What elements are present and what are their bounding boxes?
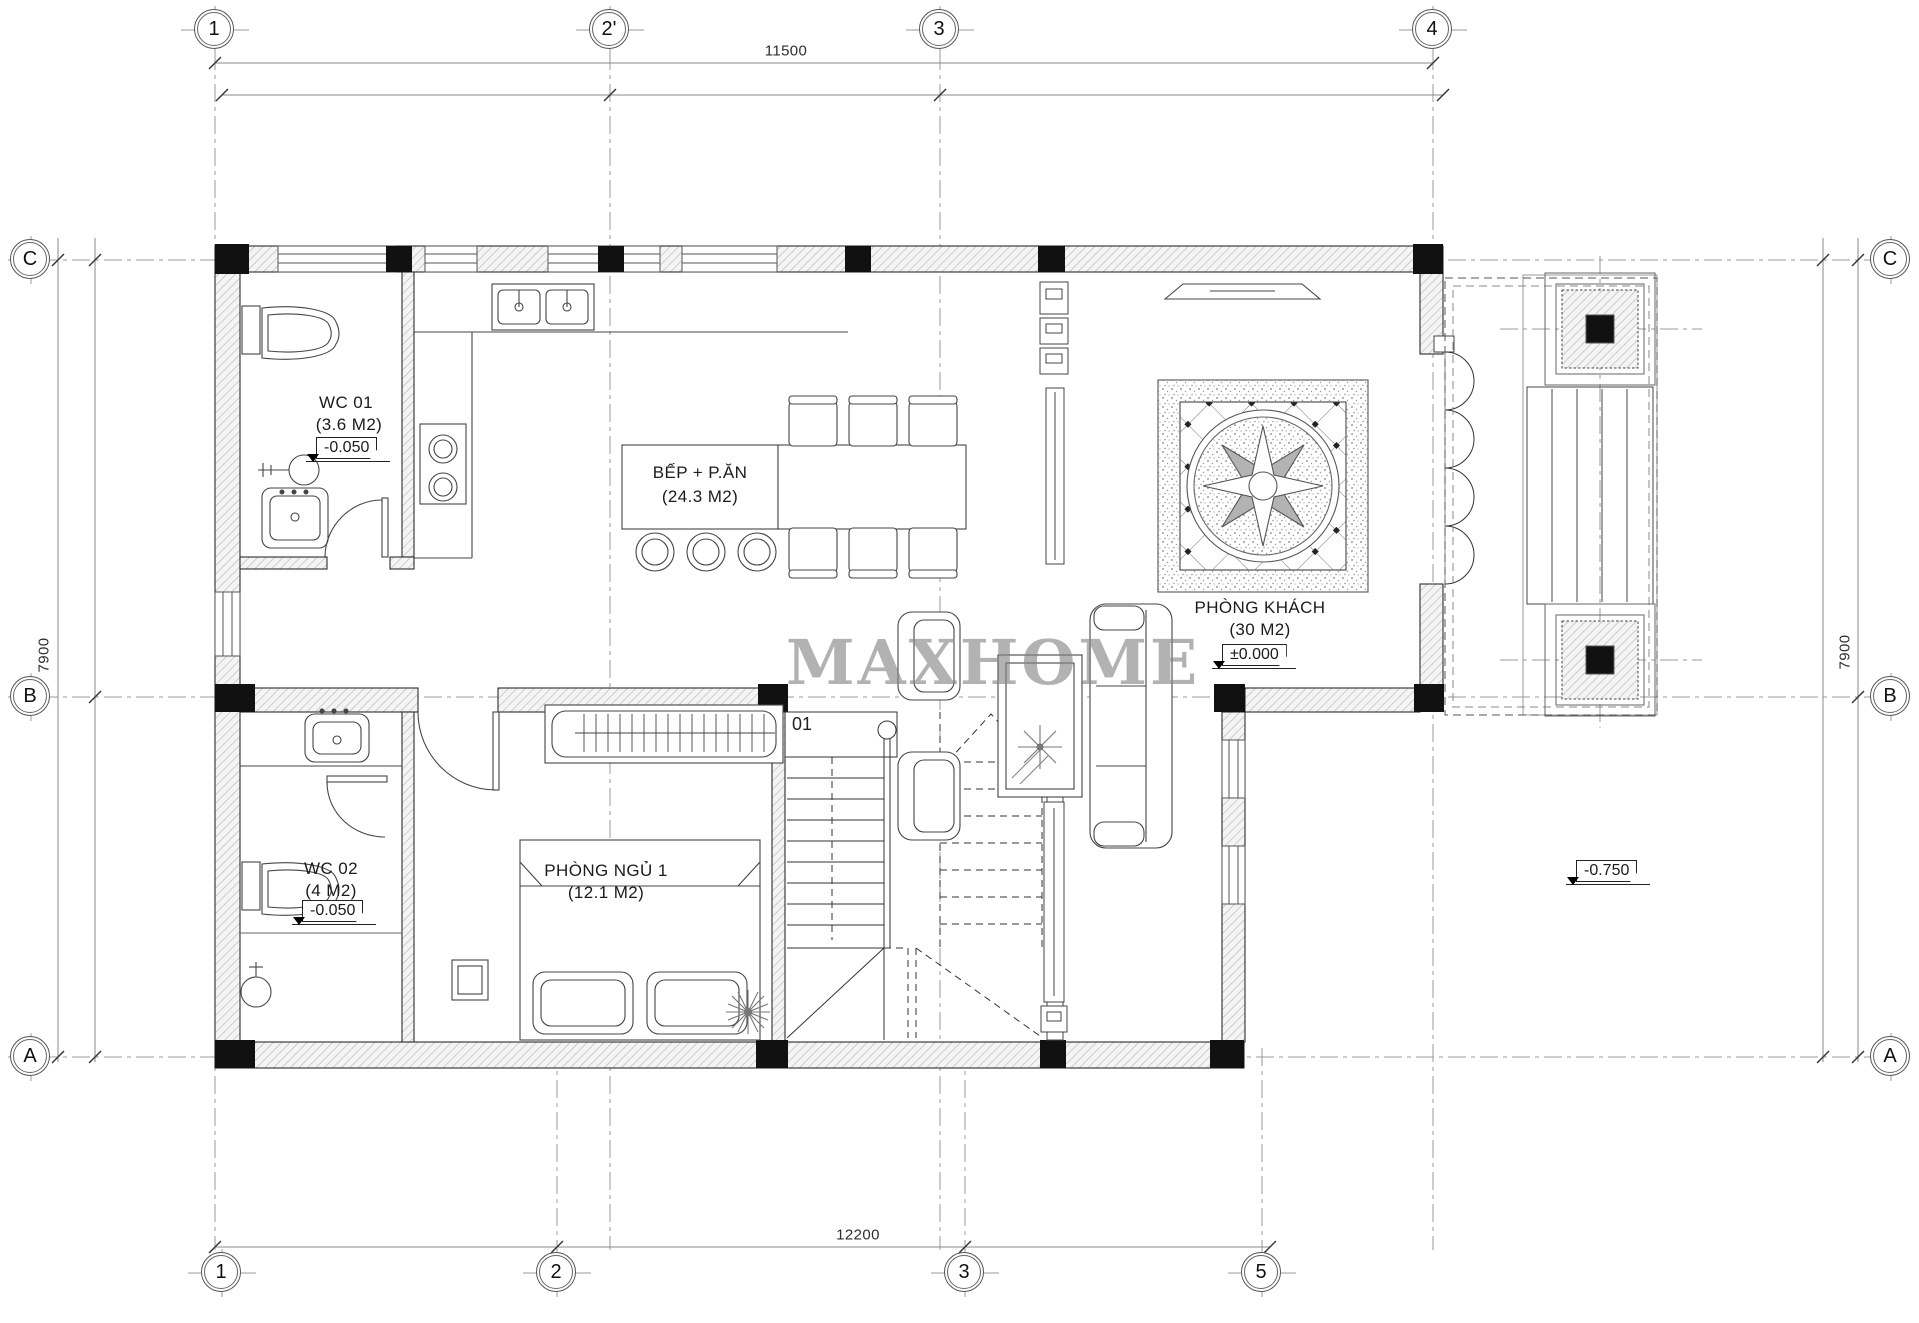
wc2-level-tag: -0.050 [292, 900, 376, 925]
armchair [898, 752, 960, 840]
wc1-door-leaf [382, 498, 388, 557]
dimension-top: 11500 [765, 43, 808, 60]
grid-bubble-left-B: B [10, 676, 50, 716]
bar-stools [636, 533, 776, 571]
wc1-level-tag: -0.050 [306, 437, 390, 462]
stair-number: 01 [792, 714, 812, 735]
bedroom-door-swing [418, 712, 496, 790]
kitchen-dining [414, 284, 966, 578]
grid-bubble-left-A: A [10, 1036, 50, 1076]
grid-bubble-bottom-5: 5 [1241, 1252, 1281, 1292]
grid-bubble-right-B: B [1870, 676, 1910, 716]
porch-steps [1527, 387, 1653, 604]
exterior-level-tag: -0.750 [1566, 860, 1650, 885]
living-room [898, 284, 1368, 848]
grid-bubble-top-1: 1 [194, 9, 234, 49]
grid-bubble-bottom-3: 3 [944, 1252, 984, 1292]
grid-bubble-right-C: C [1870, 239, 1910, 279]
floor-medallion [1158, 380, 1368, 592]
kitchen-area: (24.3 M2) [662, 487, 738, 507]
wc2-area: (4 M2) [305, 881, 357, 901]
wc2-name: WC 02 [304, 859, 358, 879]
grid-bubble-top-3: 3 [919, 9, 959, 49]
stove [420, 424, 466, 504]
grid-bubble-left-C: C [10, 239, 50, 279]
folding-door [1445, 352, 1474, 584]
grid-bubble-top-2p: 2' [589, 9, 629, 49]
bedroom-name: PHÒNG NGỦ 1 [544, 861, 667, 881]
living-level-tag: ±0.000 [1212, 644, 1296, 669]
living-name: PHÒNG KHÁCH [1195, 598, 1326, 618]
wc2-door-swing [327, 782, 385, 837]
wc2-fixtures [240, 709, 402, 1007]
dimension-left: 7900 [36, 638, 53, 673]
grid-bubble-right-A: A [1870, 1036, 1910, 1076]
wc1-area: (3.6 M2) [316, 415, 383, 435]
entrance-porch [1434, 273, 1657, 716]
bedroom-door-leaf [493, 712, 499, 790]
grid-bubble-bottom-2: 2 [536, 1252, 576, 1292]
grid-bubble-top-4: 4 [1412, 9, 1452, 49]
plant [726, 990, 770, 1034]
wc1-door-swing [325, 500, 382, 557]
grid-bubble-bottom-1: 1 [201, 1252, 241, 1292]
dimension-right: 7900 [1837, 635, 1854, 670]
living-area: (30 M2) [1229, 620, 1290, 640]
wc2-door-leaf [327, 776, 387, 782]
dining-table [778, 445, 966, 529]
wc1-name: WC 01 [319, 393, 373, 413]
wardrobe [545, 705, 783, 763]
dimension-bottom: 12200 [836, 1227, 880, 1244]
porch-column [1545, 604, 1655, 716]
floor-plan-canvas: 1 2' 3 4 1 2 3 5 C B A C B A 11500 12200… [0, 0, 1919, 1323]
bedroom-area: (12.1 M2) [568, 883, 644, 903]
kitchen-name: BẾP + P.ĂN [653, 463, 748, 483]
watermark-logo: MAXHOME [786, 626, 1200, 699]
